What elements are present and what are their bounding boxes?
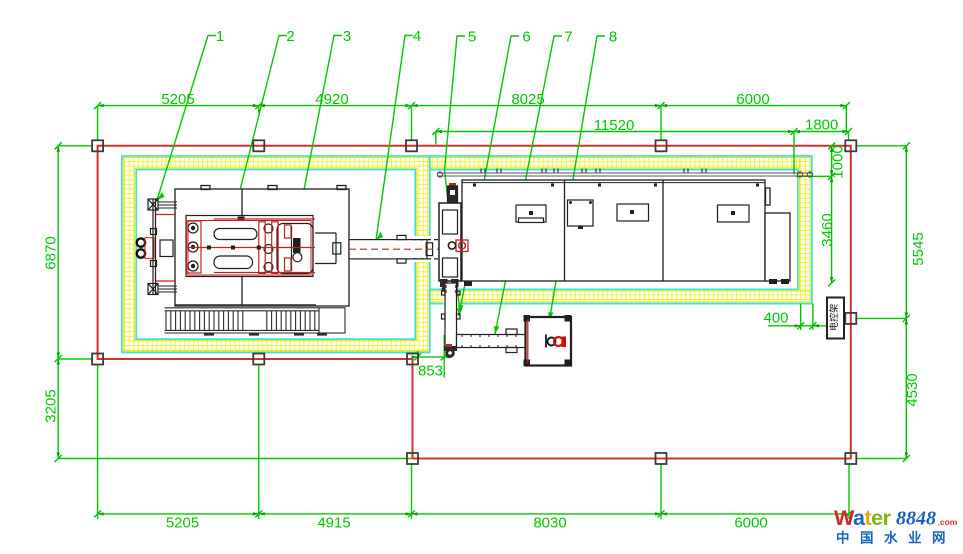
svg-text:6000: 6000 <box>736 91 769 108</box>
svg-text:中国水业网: 中国水业网 <box>836 530 956 546</box>
svg-text:3: 3 <box>343 28 351 45</box>
svg-text:8: 8 <box>609 29 617 46</box>
svg-text:7: 7 <box>564 29 572 46</box>
svg-text:6870: 6870 <box>42 236 59 269</box>
svg-text:5205: 5205 <box>161 91 194 108</box>
svg-text:4915: 4915 <box>317 515 350 532</box>
svg-text:6: 6 <box>522 29 530 46</box>
svg-text:8025: 8025 <box>511 91 544 108</box>
svg-text:1800: 1800 <box>805 117 838 134</box>
svg-text:Water: Water <box>834 506 892 530</box>
svg-text:400: 400 <box>763 310 788 327</box>
svg-text:1000: 1000 <box>829 145 846 178</box>
svg-text:2: 2 <box>286 28 294 45</box>
svg-text:4530: 4530 <box>904 373 921 406</box>
svg-text:电控架: 电控架 <box>828 304 839 331</box>
svg-text:3205: 3205 <box>43 389 60 422</box>
svg-text:4920: 4920 <box>315 91 348 108</box>
svg-text:4: 4 <box>413 28 421 45</box>
svg-text:853: 853 <box>418 363 443 380</box>
svg-text:.com: .com <box>938 517 958 527</box>
svg-text:5205: 5205 <box>166 515 199 532</box>
svg-text:6000: 6000 <box>734 515 767 532</box>
svg-text:8030: 8030 <box>533 515 566 532</box>
svg-text:5545: 5545 <box>910 232 927 265</box>
svg-text:5: 5 <box>468 29 476 46</box>
svg-text:1: 1 <box>216 28 224 45</box>
svg-text:8848: 8848 <box>896 508 936 530</box>
svg-text:3460: 3460 <box>819 213 836 246</box>
svg-text:11520: 11520 <box>594 117 635 134</box>
